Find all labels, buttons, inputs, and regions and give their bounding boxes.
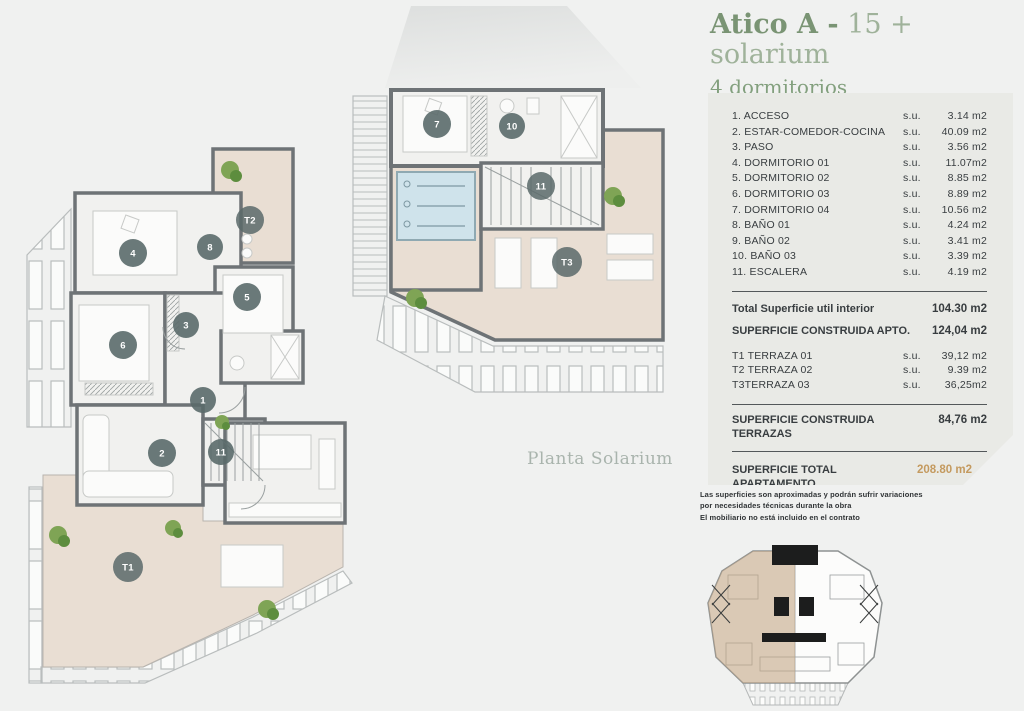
- disclaimer-line: El mobiliario no está incluido en el con…: [700, 512, 950, 523]
- railing-hatch: [353, 96, 387, 296]
- solarium-plan-label: Planta Solarium: [527, 449, 673, 469]
- table-row: 1. ACCESOs.u.3.14 m2: [732, 110, 987, 126]
- lounger: [607, 234, 653, 254]
- svg-text:6: 6: [120, 341, 126, 352]
- room-marker: 10: [499, 113, 525, 139]
- room-areas-list: 1. ACCESOs.u.3.14 m2 2. ESTAR-COMEDOR-CO…: [732, 110, 987, 282]
- room-marker: 3: [173, 312, 199, 338]
- railing-hatch: [27, 209, 71, 427]
- table-row: 6. DORMITORIO 03s.u.8.89 m2: [732, 188, 987, 204]
- kitchen-counter: [229, 503, 341, 517]
- dining-table: [253, 435, 311, 469]
- svg-text:5: 5: [244, 293, 250, 304]
- areas-panel: 1. ACCESOs.u.3.14 m2 2. ESTAR-COMEDOR-CO…: [708, 93, 1013, 485]
- table-row: T3TERRAZA 03s.u.36,25m2: [732, 379, 987, 394]
- terrace-areas-list: T1 TERRAZA 01s.u.39,12 m2 T2 TERRAZA 02s…: [732, 350, 987, 394]
- disclaimer: Las superficies son aproximadas y podrán…: [700, 489, 950, 523]
- wardrobe: [471, 96, 487, 156]
- svg-text:10: 10: [506, 122, 517, 133]
- toilet: [242, 234, 252, 244]
- roof-shadow: [385, 6, 641, 88]
- table-row: T1 TERRAZA 01s.u.39,12 m2: [732, 350, 987, 365]
- key-balcony: [743, 683, 848, 705]
- room-marker: 2: [148, 439, 176, 467]
- divider: [732, 404, 987, 405]
- table-row: T2 TERRAZA 02s.u.9.39 m2: [732, 364, 987, 379]
- construida-terrazas-row: SUPERFICIE CONSTRUIDA TERRAZAS 84,76 m2: [732, 414, 987, 441]
- table-row: 9. BAÑO 02s.u.3.41 m2: [732, 235, 987, 251]
- svg-text:4: 4: [130, 249, 136, 260]
- room-marker: 8: [197, 234, 223, 260]
- svg-text:3: 3: [183, 321, 189, 332]
- room-marker: 11: [527, 172, 555, 200]
- room-marker: 1: [190, 387, 216, 413]
- room-marker: T1: [113, 552, 143, 582]
- svg-text:11: 11: [216, 448, 227, 459]
- total-util-row: Total Superficie util interior 104.30 m2: [732, 303, 987, 317]
- table-row: 5. DORMITORIO 02s.u.8.85 m2: [732, 172, 987, 188]
- wardrobe: [85, 383, 153, 395]
- page-title: Atico A - 15 + solarium: [710, 10, 1010, 70]
- room-marker: 7: [423, 110, 451, 138]
- kitchen-island: [319, 439, 335, 489]
- room-marker: T3: [552, 247, 582, 277]
- svg-text:2: 2: [159, 449, 165, 460]
- toilet: [527, 98, 539, 114]
- room-marker: 5: [233, 283, 261, 311]
- room-marker: 4: [119, 239, 147, 267]
- svg-text:1: 1: [200, 396, 206, 407]
- building-key-plan: [698, 545, 893, 711]
- divider: [732, 291, 987, 292]
- lounger: [495, 238, 521, 288]
- jacuzzi: [397, 172, 475, 240]
- table-row: 8. BAÑO 01s.u.4.24 m2: [732, 219, 987, 235]
- divider: [732, 451, 987, 452]
- room-marker: T2: [236, 206, 264, 234]
- room-marker: 6: [109, 331, 137, 359]
- svg-text:7: 7: [434, 120, 440, 131]
- table-row: 2. ESTAR-COMEDOR-COCINAs.u.40.09 m2: [732, 126, 987, 142]
- svg-text:11: 11: [536, 182, 547, 193]
- solarium-floorplan: 7 10 11 T3: [345, 0, 670, 445]
- svg-text:T3: T3: [561, 258, 573, 269]
- bidet: [242, 248, 252, 258]
- washer: [230, 356, 244, 370]
- key-highlight: [708, 551, 795, 683]
- room-marker: 11: [208, 439, 234, 465]
- table-row: 4. DORMITORIO 01s.u.11.07m2: [732, 157, 987, 173]
- svg-text:T1: T1: [122, 563, 134, 574]
- lounger: [607, 260, 653, 280]
- construida-apto-row: SUPERFICIE CONSTRUIDA APTO. 124,04 m2: [732, 325, 987, 339]
- outdoor-table: [221, 545, 283, 587]
- table-row: 11. ESCALERAs.u.4.19 m2: [732, 266, 987, 282]
- disclaimer-line: Las superficies son aproximadas y podrán…: [700, 489, 950, 500]
- page-header: Atico A - 15 + solarium 4 dormitorios: [710, 10, 1010, 99]
- sink: [500, 99, 514, 113]
- svg-text:8: 8: [207, 243, 213, 254]
- brochure-page: { "header": { "title_bold": "Atico A -",…: [0, 0, 1024, 711]
- railing-hatch: [29, 487, 42, 683]
- table-row: 7. DORMITORIO 04s.u.10.56 m2: [732, 204, 987, 220]
- title-unit: Atico A -: [710, 9, 839, 40]
- table-row: 3. PASOs.u.3.56 m2: [732, 141, 987, 157]
- sofa: [83, 471, 173, 497]
- table-row: 10. BAÑO 03s.u.3.39 m2: [732, 250, 987, 266]
- disclaimer-line: por necesidades técnicas durante la obra: [700, 500, 950, 511]
- main-floorplan: 4 8 T2 5 3 6 1 2 11 T1: [25, 135, 380, 705]
- svg-text:T2: T2: [244, 216, 256, 227]
- total-apartamento-row: SUPERFICIE TOTAL APARTAMENTO 208.80 m2: [732, 464, 987, 491]
